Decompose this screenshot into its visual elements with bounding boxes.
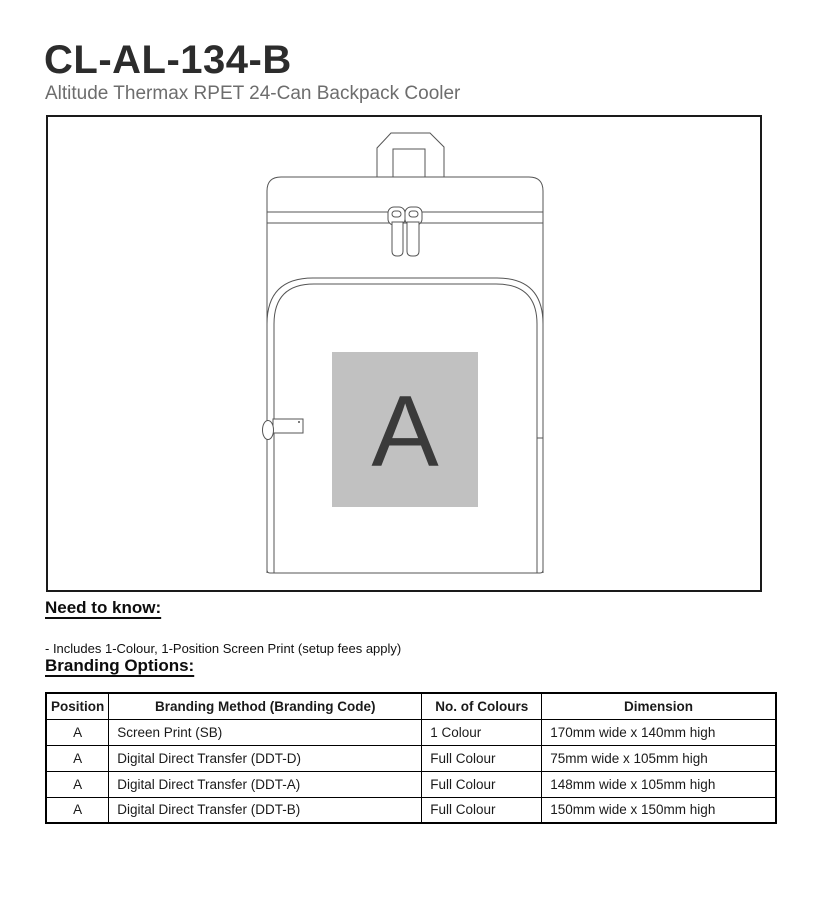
side-zipper-tab-rivet	[298, 421, 300, 423]
cell-no-of-colours: Full Colour	[422, 771, 542, 797]
product-image-frame: A	[46, 115, 762, 592]
side-zipper-tab	[273, 419, 303, 433]
header-no-of-colours: No. of Colours	[422, 693, 542, 719]
branding-options-table: Position Branding Method (Branding Code)…	[45, 692, 777, 824]
cell-branding-method: Digital Direct Transfer (DDT-D)	[109, 745, 422, 771]
cell-dimension: 75mm wide x 105mm high	[542, 745, 776, 771]
branding-options-heading: Branding Options:	[45, 657, 194, 676]
backpack-diagram: A	[48, 117, 760, 590]
cell-no-of-colours: Full Colour	[422, 745, 542, 771]
need-to-know-heading: Need to know:	[45, 599, 161, 618]
table-header-row: Position Branding Method (Branding Code)…	[46, 693, 776, 719]
header-branding-method: Branding Method (Branding Code)	[109, 693, 422, 719]
table-row: A Digital Direct Transfer (DDT-B) Full C…	[46, 797, 776, 823]
page-title: CL-AL-134-B	[44, 40, 292, 80]
side-zipper-slider	[263, 421, 274, 440]
table-row: A Digital Direct Transfer (DDT-D) Full C…	[46, 745, 776, 771]
table-row: A Digital Direct Transfer (DDT-A) Full C…	[46, 771, 776, 797]
table-row: A Screen Print (SB) 1 Colour 170mm wide …	[46, 719, 776, 745]
cell-position: A	[46, 797, 109, 823]
cell-branding-method: Screen Print (SB)	[109, 719, 422, 745]
cell-dimension: 170mm wide x 140mm high	[542, 719, 776, 745]
page-subtitle: Altitude Thermax RPET 24-Can Backpack Co…	[45, 84, 460, 105]
cell-position: A	[46, 719, 109, 745]
cell-no-of-colours: Full Colour	[422, 797, 542, 823]
cell-dimension: 148mm wide x 105mm high	[542, 771, 776, 797]
need-to-know-note: - Includes 1-Colour, 1-Position Screen P…	[45, 641, 401, 657]
backpack-handle	[377, 133, 444, 177]
cell-branding-method: Digital Direct Transfer (DDT-B)	[109, 797, 422, 823]
header-dimension: Dimension	[542, 693, 776, 719]
cell-branding-method: Digital Direct Transfer (DDT-A)	[109, 771, 422, 797]
cell-dimension: 150mm wide x 150mm high	[542, 797, 776, 823]
zipper-strap-left	[392, 222, 403, 256]
cell-position: A	[46, 771, 109, 797]
branding-position-letter: A	[371, 376, 439, 488]
header-position: Position	[46, 693, 109, 719]
cell-no-of-colours: 1 Colour	[422, 719, 542, 745]
cell-position: A	[46, 745, 109, 771]
zipper-strap-right	[407, 222, 419, 256]
